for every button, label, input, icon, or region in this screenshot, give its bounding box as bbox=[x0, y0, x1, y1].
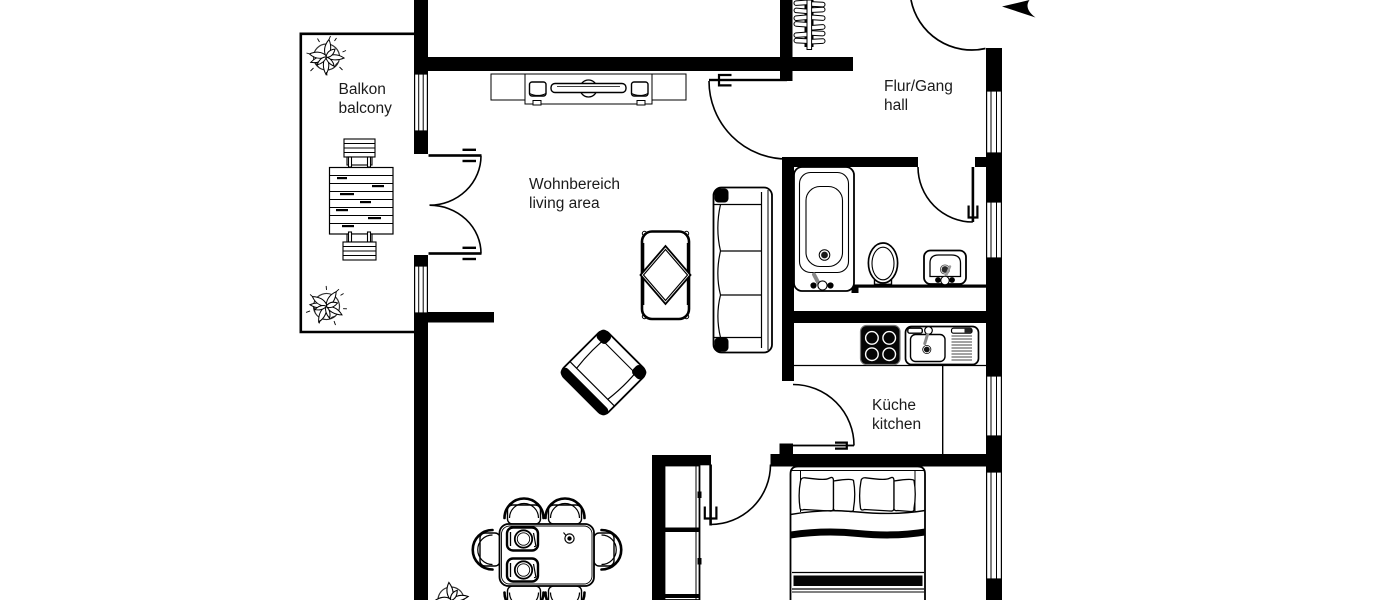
svg-text:Küche: Küche bbox=[872, 397, 916, 414]
svg-text:hall: hall bbox=[884, 97, 908, 114]
svg-text:Flur/Gang: Flur/Gang bbox=[884, 78, 953, 95]
svg-text:Balkon: Balkon bbox=[339, 81, 386, 98]
svg-text:living area: living area bbox=[529, 195, 600, 212]
svg-text:Wohnbereich: Wohnbereich bbox=[529, 176, 620, 193]
svg-text:balcony: balcony bbox=[339, 100, 393, 117]
svg-text:kitchen: kitchen bbox=[872, 416, 921, 433]
